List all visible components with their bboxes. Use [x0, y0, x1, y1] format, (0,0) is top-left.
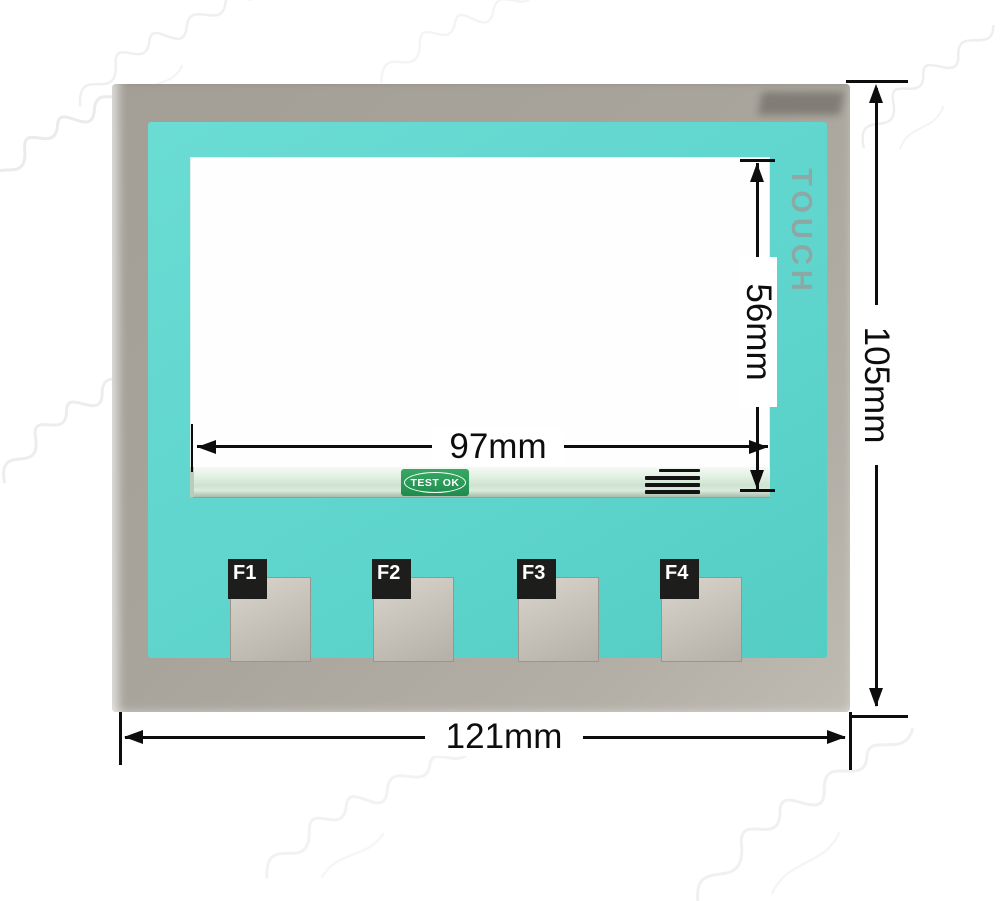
- dim-arrow-down: [750, 470, 764, 489]
- dim-label-56mm: 56mm: [739, 257, 777, 407]
- dim-arrow-down: [869, 688, 883, 707]
- key-f2-label: F2: [372, 559, 411, 599]
- dim-arrow-right: [827, 730, 846, 744]
- ribbon-cable: TEST OK: [190, 467, 770, 498]
- cable-connector-trace: [645, 490, 700, 494]
- cable-connector-trace: [645, 483, 700, 487]
- test-ok-label: TEST OK: [404, 472, 466, 493]
- dim-extension-line: [849, 715, 908, 718]
- dim-tick: [740, 489, 775, 492]
- touch-branding-text: TOUCH: [783, 157, 819, 307]
- watermark-script: [650, 693, 970, 901]
- dim-extension-line: [846, 80, 908, 83]
- dim-tick: [191, 424, 193, 472]
- dim-label-121mm: 121mm: [425, 718, 583, 756]
- key-f3-label: F3: [517, 559, 556, 599]
- key-f1-label: F1: [228, 559, 267, 599]
- teal-bezel: TEST OK TOUCH F1 F2 F3: [148, 122, 827, 658]
- dim-label-105mm: 105mm: [857, 305, 895, 465]
- dim-arrow-up: [869, 84, 883, 103]
- dim-arrow-left: [124, 730, 143, 744]
- cable-connector-trace: [645, 476, 700, 480]
- key-f4-label: F4: [660, 559, 699, 599]
- dim-label-97mm: 97mm: [432, 428, 564, 466]
- dim-tick: [119, 712, 122, 765]
- blurred-brand-logo: [758, 92, 844, 115]
- watermark-script: [824, 0, 1000, 179]
- cable-connector-trace: [659, 469, 700, 472]
- dim-arrow-left: [197, 440, 216, 454]
- product-photo: TEST OK TOUCH F1 F2 F3: [0, 0, 1000, 901]
- dim-tick: [740, 159, 775, 162]
- dim-tick: [849, 712, 852, 770]
- dim-arrow-up: [750, 163, 764, 182]
- test-ok-badge: TEST OK: [401, 469, 469, 496]
